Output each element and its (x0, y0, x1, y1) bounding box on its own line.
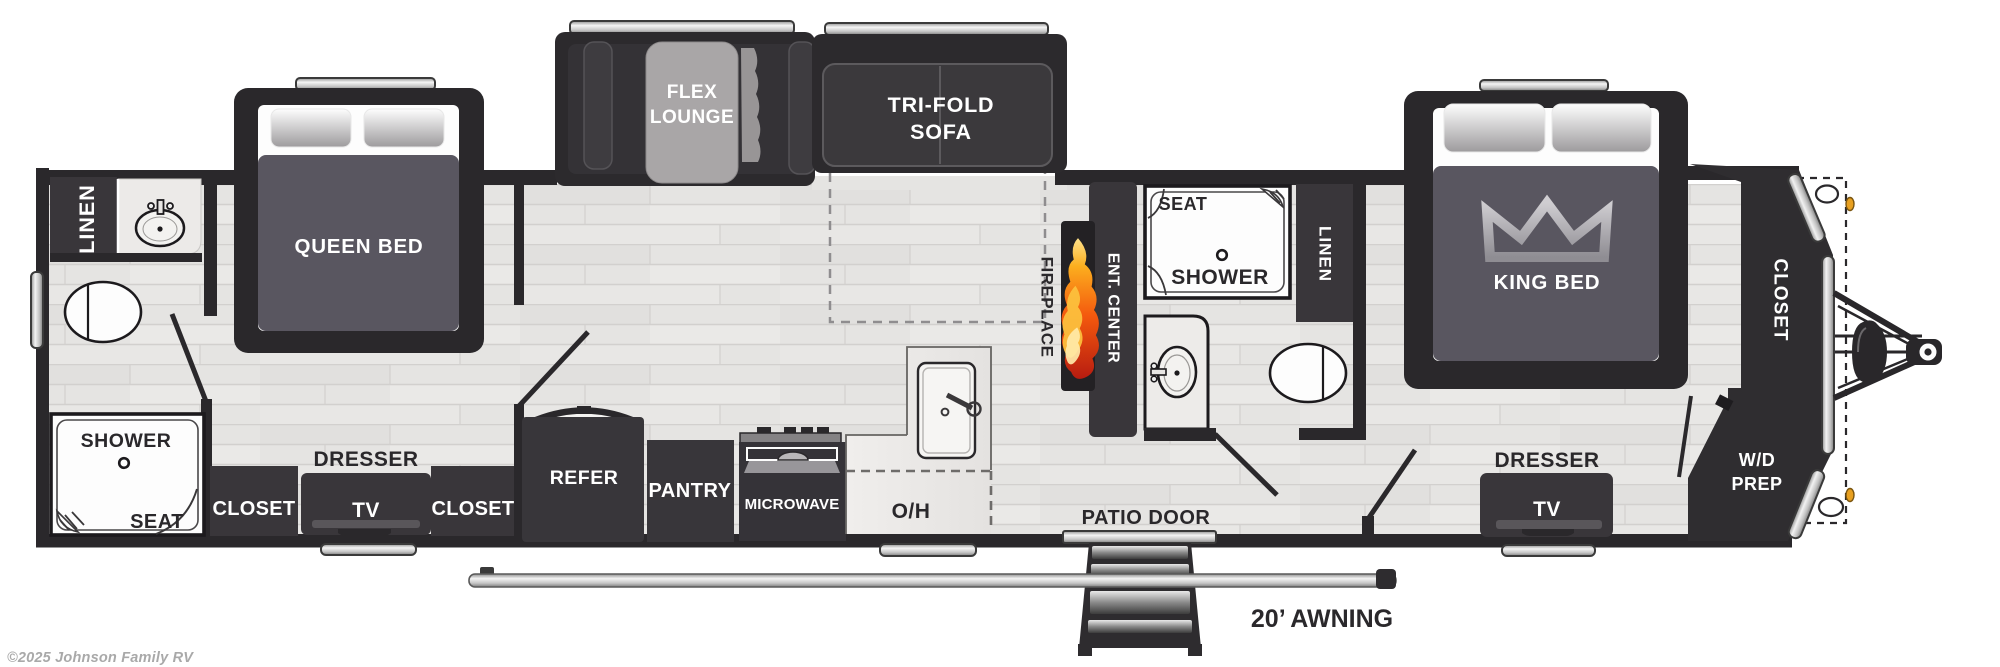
svg-text:SHOWER: SHOWER (1171, 266, 1269, 289)
svg-text:©2025 Johnson Family RV: ©2025 Johnson Family RV (7, 650, 194, 666)
svg-text:PATIO DOOR: PATIO DOOR (1082, 507, 1211, 529)
svg-text:TRI-FOLD: TRI-FOLD (888, 93, 995, 117)
svg-text:REFER: REFER (550, 467, 619, 489)
svg-text:ENT. CENTER: ENT. CENTER (1105, 253, 1122, 363)
svg-text:SEAT: SEAT (1159, 194, 1208, 214)
svg-text:CLOSET: CLOSET (213, 498, 296, 520)
svg-text:LOUNGE: LOUNGE (650, 107, 734, 128)
svg-text:TV: TV (352, 499, 380, 522)
svg-text:DRESSER: DRESSER (313, 448, 418, 471)
svg-text:CLOSET: CLOSET (432, 498, 515, 520)
svg-text:CLOSET: CLOSET (1770, 258, 1791, 341)
svg-text:LINEN: LINEN (75, 184, 99, 254)
svg-text:SHOWER: SHOWER (81, 430, 172, 452)
svg-text:PREP: PREP (1731, 474, 1782, 494)
svg-text:20’ AWNING: 20’ AWNING (1251, 605, 1393, 633)
svg-text:KING BED: KING BED (1494, 271, 1601, 294)
svg-text:MICROWAVE: MICROWAVE (745, 496, 840, 513)
svg-text:QUEEN BED: QUEEN BED (294, 235, 423, 258)
svg-text:LINEN: LINEN (1316, 226, 1335, 282)
svg-text:FIREPLACE: FIREPLACE (1038, 257, 1057, 358)
svg-text:SOFA: SOFA (910, 120, 972, 144)
svg-text:W/D: W/D (1739, 450, 1776, 470)
svg-text:PANTRY: PANTRY (649, 480, 732, 502)
svg-text:FLEX: FLEX (667, 82, 718, 103)
svg-text:DRESSER: DRESSER (1494, 449, 1599, 472)
svg-text:O/H: O/H (892, 500, 931, 523)
svg-text:TV: TV (1533, 498, 1561, 521)
svg-text:SEAT: SEAT (130, 511, 184, 533)
